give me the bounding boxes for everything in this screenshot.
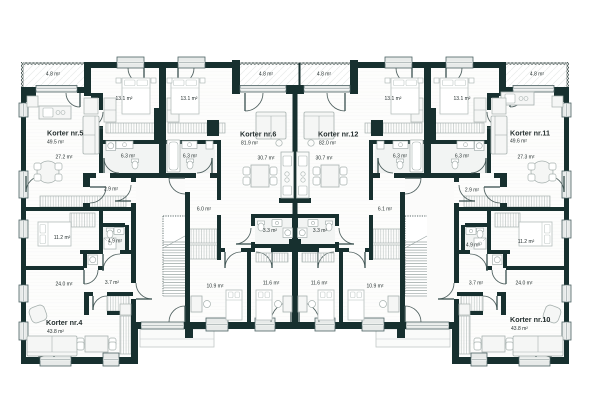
svg-text:43.8 m²: 43.8 m² — [47, 329, 64, 335]
svg-text:13.1 m²: 13.1 m² — [454, 96, 471, 102]
svg-text:82.0 m²: 82.0 m² — [319, 141, 336, 147]
svg-text:11.2 m²: 11.2 m² — [518, 239, 535, 245]
svg-text:6.3 m²: 6.3 m² — [183, 154, 198, 160]
svg-text:30.7 m²: 30.7 m² — [316, 156, 333, 162]
svg-text:4.9 m²: 4.9 m² — [108, 239, 123, 245]
svg-text:4.9 m²: 4.9 m² — [466, 243, 481, 249]
svg-text:Korter nr.11: Korter nr.11 — [510, 129, 550, 138]
svg-text:2.9 m²: 2.9 m² — [104, 187, 119, 193]
svg-text:3.7 m²: 3.7 m² — [469, 281, 484, 287]
svg-text:27.2 m²: 27.2 m² — [56, 155, 73, 161]
svg-text:6.3 m²: 6.3 m² — [455, 154, 470, 160]
svg-text:24.0 m²: 24.0 m² — [56, 282, 73, 288]
svg-text:3.7 m²: 3.7 m² — [105, 280, 120, 286]
svg-text:10.9 m²: 10.9 m² — [207, 284, 224, 290]
svg-text:2.9 m²: 2.9 m² — [465, 188, 480, 194]
svg-text:81.9 m²: 81.9 m² — [241, 141, 258, 147]
svg-text:6.3 m²: 6.3 m² — [393, 154, 408, 160]
svg-text:10.9 m²: 10.9 m² — [367, 284, 384, 290]
svg-text:4.8 m²: 4.8 m² — [530, 72, 545, 78]
svg-text:11.6 m²: 11.6 m² — [311, 281, 328, 287]
svg-text:13.1 m²: 13.1 m² — [385, 96, 402, 102]
svg-text:6.1 m²: 6.1 m² — [378, 207, 393, 213]
svg-text:4.8 m²: 4.8 m² — [317, 72, 332, 78]
svg-text:Korter nr.6: Korter nr.6 — [240, 130, 276, 139]
svg-text:11.2 m²: 11.2 m² — [54, 235, 71, 241]
svg-text:3.3 m²: 3.3 m² — [263, 228, 278, 234]
svg-text:Korter nr.10: Korter nr.10 — [510, 315, 550, 324]
svg-text:6.0 m²: 6.0 m² — [197, 207, 212, 213]
svg-text:49.6 m²: 49.6 m² — [510, 139, 527, 145]
svg-text:13.1 m²: 13.1 m² — [181, 96, 198, 102]
svg-text:30.7 m²: 30.7 m² — [258, 156, 275, 162]
svg-text:4.8 m²: 4.8 m² — [46, 72, 61, 78]
svg-text:6.3 m²: 6.3 m² — [121, 154, 136, 160]
svg-text:43.8 m²: 43.8 m² — [511, 326, 528, 332]
svg-text:27.3 m²: 27.3 m² — [518, 155, 535, 161]
svg-text:49.5 m²: 49.5 m² — [47, 140, 64, 146]
svg-text:11.6 m²: 11.6 m² — [263, 281, 280, 287]
svg-text:Korter nr.5: Korter nr.5 — [47, 129, 83, 138]
svg-text:Korter nr.4: Korter nr.4 — [46, 318, 82, 327]
svg-text:Korter nr.12: Korter nr.12 — [318, 130, 358, 139]
svg-text:4.8 m²: 4.8 m² — [259, 72, 274, 78]
svg-text:3.3 m²: 3.3 m² — [313, 228, 328, 234]
svg-text:24.0 m²: 24.0 m² — [516, 281, 533, 287]
svg-text:13.1 m²: 13.1 m² — [116, 96, 133, 102]
